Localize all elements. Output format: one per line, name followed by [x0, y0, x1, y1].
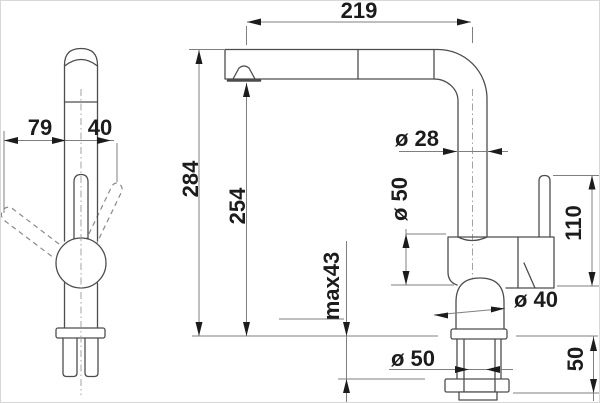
label-max-counter-thickness: max43 [319, 252, 344, 321]
aerator [233, 66, 255, 79]
label-base-diameter: ø 40 [514, 287, 558, 312]
label-spout-reach: 219 [341, 1, 378, 23]
arrow [343, 322, 350, 336]
dimension-lines [4, 19, 597, 403]
label-side-offset-right: 40 [88, 115, 112, 140]
arrow [243, 83, 250, 97]
arrow [590, 337, 597, 351]
arrow [443, 148, 457, 155]
arrow [196, 50, 203, 64]
label-pipe-diameter: ø 28 [395, 126, 439, 151]
mounting-nut [445, 379, 509, 392]
side-leg-right [85, 338, 98, 377]
side-view [1, 49, 122, 396]
arrow [590, 379, 597, 393]
label-body-diameter: ø 50 [387, 177, 412, 221]
arrow [343, 379, 350, 393]
arrow [247, 19, 261, 26]
arrow [4, 137, 18, 144]
arrow [486, 366, 500, 373]
spout-outline [225, 50, 487, 238]
drawing-canvas: 219 79 40 284 254 ø 28 ø 50 110 max43 ø … [1, 1, 600, 403]
arrow [457, 19, 471, 26]
label-side-offset-left: 79 [28, 115, 52, 140]
front-view [225, 50, 554, 401]
label-shank-length: 50 [563, 347, 588, 371]
label-outlet-height: 254 [225, 187, 250, 224]
faucet-technical-drawing: 219 79 40 284 254 ø 28 ø 50 110 max43 ø … [0, 0, 600, 403]
shank [457, 339, 501, 379]
arrow [403, 271, 410, 285]
side-cap-seam [65, 60, 98, 67]
body-block [448, 237, 554, 288]
arrow [243, 322, 250, 336]
side-base-flange [56, 328, 105, 338]
arrow [455, 366, 469, 373]
arrow [488, 148, 502, 155]
base-flange [451, 329, 507, 339]
arrow [589, 272, 596, 286]
body-joint-line [506, 237, 518, 288]
spout-joint-lines [358, 50, 434, 80]
label-total-height: 284 [178, 160, 203, 197]
handle-lever [539, 176, 550, 238]
arrow [196, 322, 203, 336]
handle-position-lower-dashed [1, 207, 59, 258]
lower-dome [456, 278, 504, 330]
arrow [589, 176, 596, 190]
shank-end [459, 392, 497, 400]
handle-hub-line [524, 263, 535, 288]
handle-position-upper-dashed [85, 183, 122, 247]
side-spout-tube [65, 49, 98, 242]
side-leg-left [63, 338, 77, 377]
label-handle-height: 110 [561, 205, 586, 241]
label-base-ring-diameter: ø 50 [391, 346, 435, 371]
arrow [403, 234, 410, 248]
arrow [434, 313, 448, 319]
